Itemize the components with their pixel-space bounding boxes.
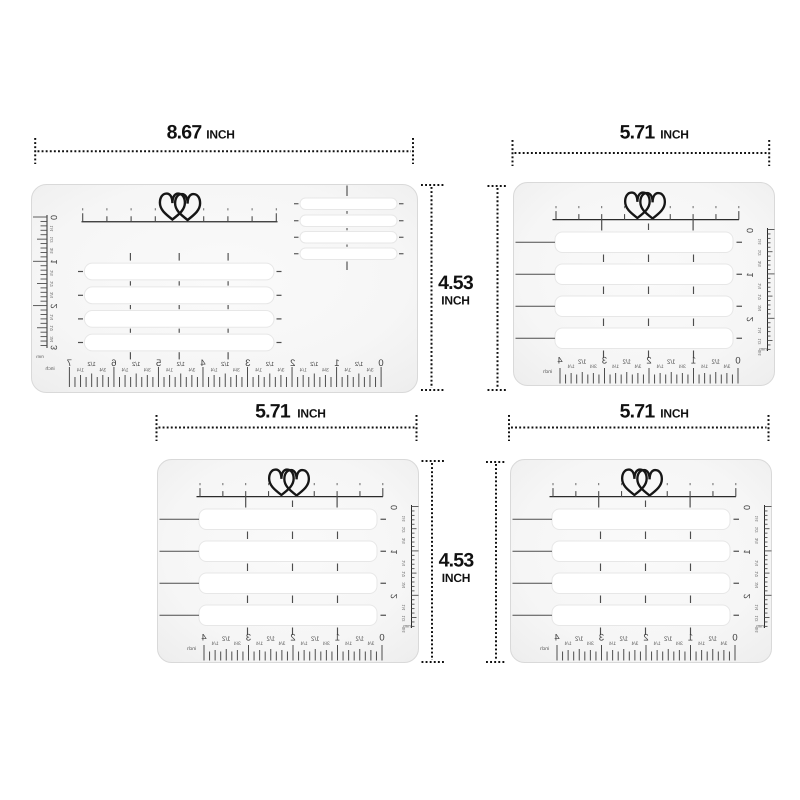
svg-text:3/4: 3/4	[278, 641, 285, 647]
svg-text:2: 2	[646, 356, 651, 367]
svg-text:1/4: 1/4	[754, 516, 759, 523]
svg-text:1: 1	[742, 549, 752, 554]
svg-text:1/2: 1/2	[310, 361, 319, 368]
svg-text:1/4: 1/4	[77, 368, 84, 374]
svg-text:3/4: 3/4	[366, 368, 373, 374]
svg-text:1/4: 1/4	[653, 641, 660, 647]
svg-text:1/4: 1/4	[609, 641, 616, 647]
svg-text:3/4: 3/4	[754, 538, 759, 545]
svg-text:inch: inch	[45, 366, 54, 372]
svg-text:3/4: 3/4	[676, 641, 683, 647]
svg-text:3/4: 3/4	[277, 368, 284, 374]
svg-text:4.53: 4.53	[439, 550, 475, 572]
svg-text:0: 0	[735, 356, 740, 367]
svg-text:1/4: 1/4	[401, 560, 406, 567]
svg-text:2: 2	[742, 594, 752, 599]
svg-text:5.71: 5.71	[620, 401, 656, 423]
svg-text:1/4: 1/4	[656, 364, 663, 370]
svg-text:8.67: 8.67	[167, 122, 202, 144]
svg-text:3: 3	[602, 356, 607, 367]
svg-text:1/2: 1/2	[711, 359, 720, 366]
svg-text:mm: mm	[756, 624, 764, 629]
svg-text:1/4: 1/4	[754, 560, 759, 567]
svg-text:mm: mm	[403, 624, 411, 629]
svg-text:0: 0	[389, 505, 399, 510]
svg-text:1/4: 1/4	[49, 270, 54, 277]
svg-text:1/2: 1/2	[266, 636, 275, 643]
svg-text:3/4: 3/4	[723, 364, 730, 370]
svg-text:3/4: 3/4	[757, 261, 762, 268]
svg-text:4: 4	[201, 633, 206, 644]
svg-text:3/4: 3/4	[401, 582, 406, 589]
svg-text:1/2: 1/2	[49, 281, 54, 288]
svg-text:1/4: 1/4	[255, 368, 262, 374]
svg-text:3/4: 3/4	[188, 368, 195, 374]
svg-text:mm: mm	[36, 354, 44, 359]
svg-text:1/4: 1/4	[401, 604, 406, 611]
svg-text:3/4: 3/4	[757, 305, 762, 312]
svg-text:3/4: 3/4	[367, 641, 374, 647]
svg-text:1: 1	[745, 272, 755, 277]
svg-text:1/2: 1/2	[401, 616, 406, 623]
svg-text:1/4: 1/4	[256, 641, 263, 647]
svg-text:1/4: 1/4	[49, 314, 54, 321]
svg-text:1/4: 1/4	[344, 368, 351, 374]
svg-text:3/4: 3/4	[99, 368, 106, 374]
svg-text:3/4: 3/4	[49, 336, 54, 343]
svg-text:1/4: 1/4	[210, 368, 217, 374]
svg-text:2: 2	[290, 633, 295, 644]
svg-text:mm: mm	[759, 347, 767, 352]
svg-text:4: 4	[557, 356, 562, 367]
svg-text:3/4: 3/4	[323, 641, 330, 647]
svg-text:2: 2	[643, 633, 648, 644]
svg-text:1/2: 1/2	[265, 361, 274, 368]
svg-text:1/2: 1/2	[354, 361, 363, 368]
svg-text:3/4: 3/4	[720, 641, 727, 647]
svg-text:1: 1	[691, 356, 696, 367]
svg-text:1/2: 1/2	[310, 636, 319, 643]
svg-text:1: 1	[389, 549, 399, 554]
svg-text:3/4: 3/4	[634, 364, 641, 370]
svg-text:3/4: 3/4	[234, 641, 241, 647]
svg-text:3/4: 3/4	[233, 368, 240, 374]
svg-text:1/4: 1/4	[564, 641, 571, 647]
svg-text:2: 2	[290, 358, 295, 369]
svg-text:1/4: 1/4	[698, 641, 705, 647]
svg-text:INCH: INCH	[441, 294, 470, 308]
svg-text:inch: inch	[540, 646, 549, 652]
svg-text:1/4: 1/4	[754, 604, 759, 611]
svg-text:4.53: 4.53	[438, 272, 474, 294]
svg-text:2: 2	[389, 594, 399, 599]
svg-text:2: 2	[49, 304, 59, 309]
svg-text:1/4: 1/4	[300, 368, 307, 374]
svg-text:1: 1	[49, 259, 59, 264]
svg-text:1/4: 1/4	[121, 368, 128, 374]
svg-text:1/2: 1/2	[49, 325, 54, 332]
svg-text:inch: inch	[187, 646, 196, 652]
svg-text:0: 0	[379, 633, 384, 644]
svg-text:inch: inch	[543, 369, 552, 375]
svg-text:3/4: 3/4	[49, 292, 54, 299]
svg-text:1/2: 1/2	[754, 616, 759, 623]
svg-text:3/4: 3/4	[401, 538, 406, 545]
svg-text:1/2: 1/2	[757, 339, 762, 346]
svg-text:1/2: 1/2	[757, 294, 762, 301]
svg-text:4: 4	[554, 633, 559, 644]
svg-text:1/4: 1/4	[567, 364, 574, 370]
svg-text:5.71: 5.71	[255, 401, 291, 423]
svg-text:INCH: INCH	[442, 571, 471, 585]
svg-text:1/2: 1/2	[622, 359, 631, 366]
svg-text:3/4: 3/4	[587, 641, 594, 647]
svg-text:1/4: 1/4	[757, 283, 762, 290]
svg-text:1/4: 1/4	[166, 368, 173, 374]
svg-text:1/4: 1/4	[211, 641, 218, 647]
svg-text:INCH: INCH	[660, 128, 689, 142]
svg-text:5.71: 5.71	[620, 122, 656, 144]
svg-text:1/4: 1/4	[757, 327, 762, 334]
svg-text:1/2: 1/2	[708, 636, 717, 643]
svg-text:1/2: 1/2	[87, 361, 96, 368]
svg-text:3/4: 3/4	[754, 582, 759, 589]
svg-text:1/4: 1/4	[49, 226, 54, 233]
svg-text:2: 2	[745, 317, 755, 322]
svg-text:1/2: 1/2	[619, 636, 628, 643]
svg-text:3: 3	[246, 633, 251, 644]
svg-text:1/2: 1/2	[757, 250, 762, 257]
svg-text:3: 3	[599, 633, 604, 644]
svg-text:1/4: 1/4	[612, 364, 619, 370]
svg-text:1/2: 1/2	[754, 571, 759, 578]
svg-text:1/4: 1/4	[345, 641, 352, 647]
svg-text:1: 1	[688, 633, 693, 644]
svg-text:1/2: 1/2	[663, 636, 672, 643]
svg-text:1/2: 1/2	[754, 527, 759, 534]
svg-text:1/2: 1/2	[131, 361, 140, 368]
svg-text:INCH: INCH	[297, 407, 326, 421]
svg-text:INCH: INCH	[660, 407, 689, 421]
svg-text:3/4: 3/4	[144, 368, 151, 374]
svg-text:3/4: 3/4	[631, 641, 638, 647]
svg-text:1/2: 1/2	[401, 571, 406, 578]
svg-text:1/2: 1/2	[220, 361, 229, 368]
svg-text:INCH: INCH	[206, 128, 235, 142]
svg-text:0: 0	[49, 215, 59, 220]
svg-text:1/2: 1/2	[176, 361, 185, 368]
svg-text:1/4: 1/4	[300, 641, 307, 647]
svg-text:1/2: 1/2	[401, 527, 406, 534]
svg-text:0: 0	[732, 633, 737, 644]
svg-text:1/4: 1/4	[701, 364, 708, 370]
svg-text:1: 1	[335, 633, 340, 644]
svg-text:1/2: 1/2	[355, 636, 364, 643]
svg-text:1/2: 1/2	[577, 359, 586, 366]
svg-text:0: 0	[745, 228, 755, 233]
svg-text:3/4: 3/4	[590, 364, 597, 370]
svg-text:3/4: 3/4	[322, 368, 329, 374]
svg-text:0: 0	[742, 505, 752, 510]
svg-text:3: 3	[49, 345, 59, 350]
svg-text:1/2: 1/2	[574, 636, 583, 643]
svg-text:1/4: 1/4	[757, 239, 762, 246]
svg-text:1/2: 1/2	[221, 636, 230, 643]
svg-text:3/4: 3/4	[679, 364, 686, 370]
svg-text:1/4: 1/4	[401, 516, 406, 523]
svg-text:1/2: 1/2	[49, 237, 54, 244]
svg-text:3/4: 3/4	[49, 248, 54, 255]
svg-text:1/2: 1/2	[666, 359, 675, 366]
